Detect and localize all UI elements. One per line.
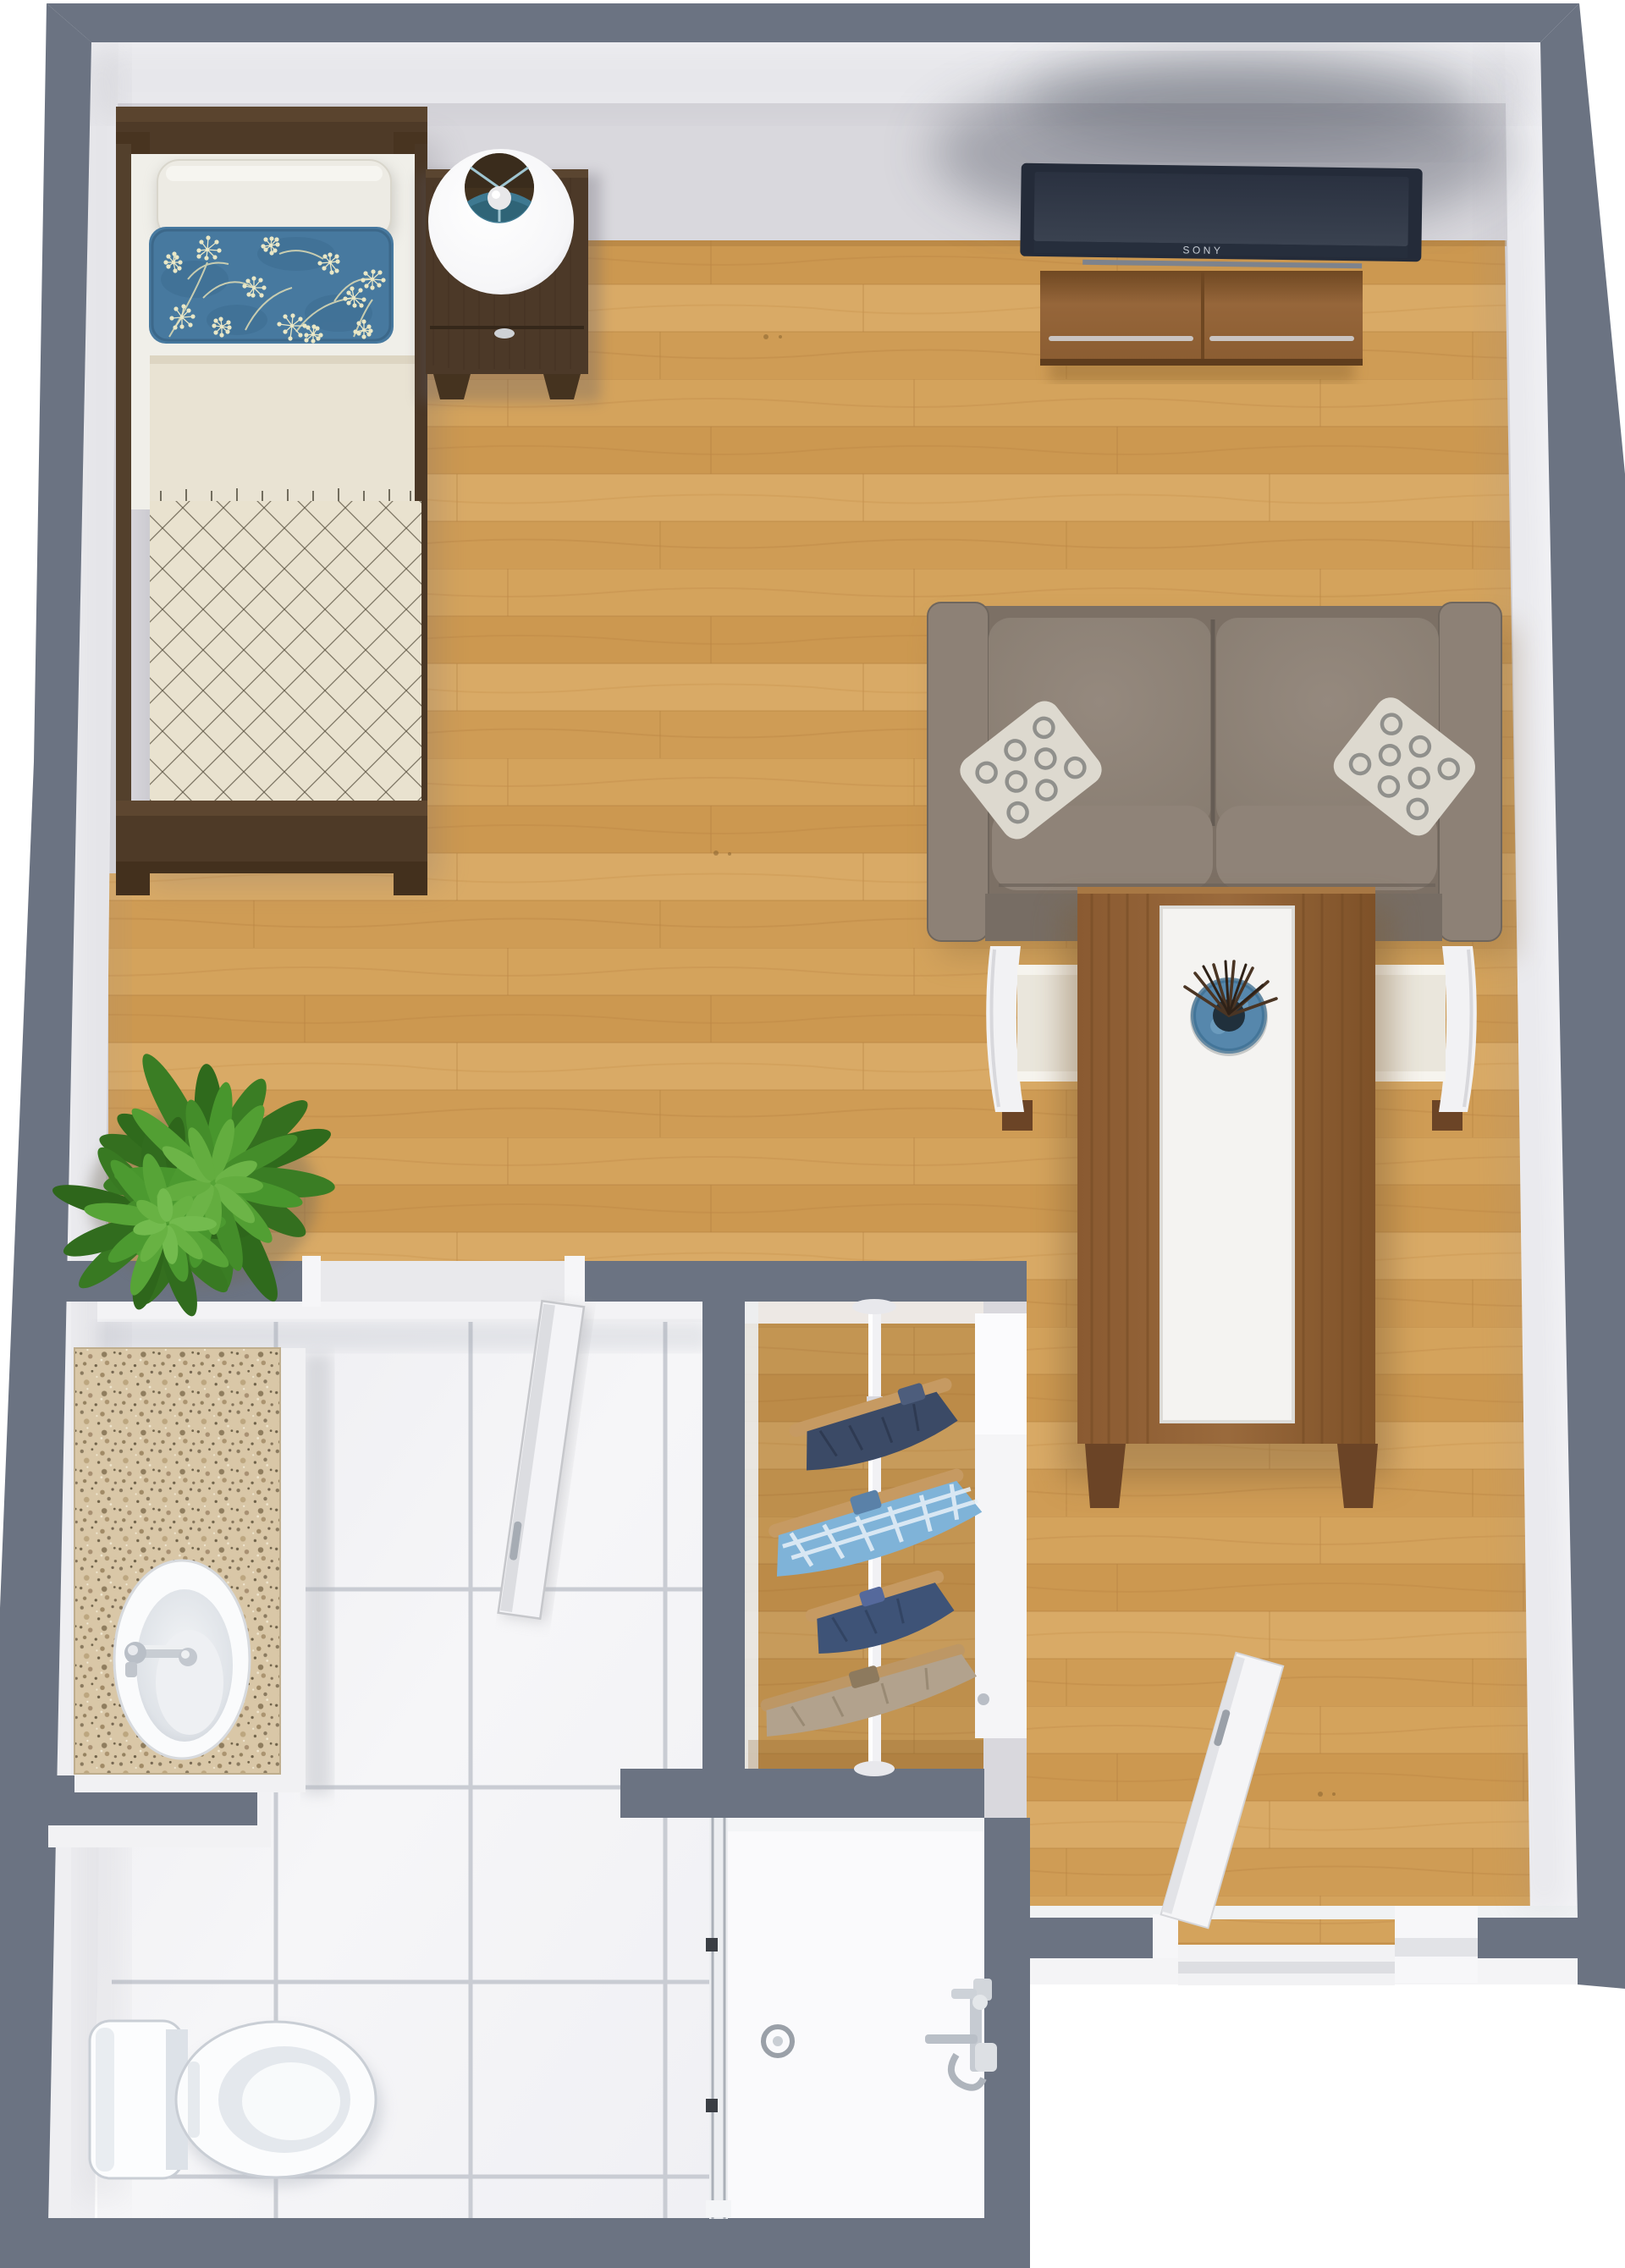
svg-text:SONY: SONY — [1182, 244, 1223, 256]
